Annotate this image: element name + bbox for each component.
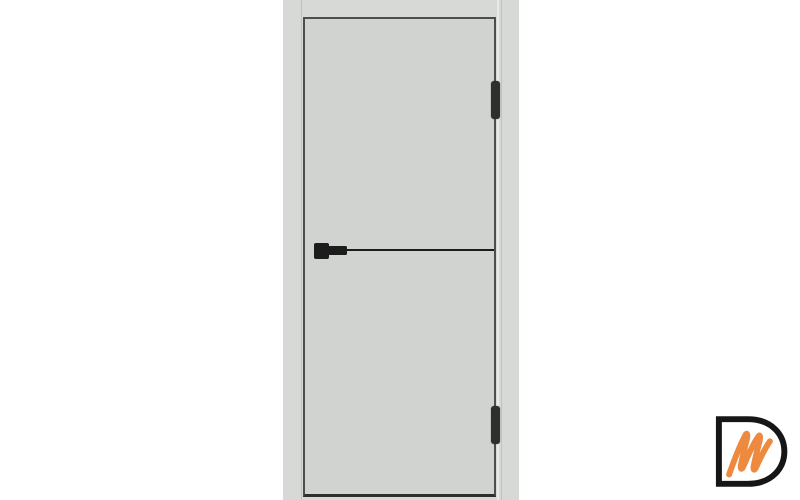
door-leaf: [303, 17, 496, 497]
right-jamb-edge: [501, 0, 502, 500]
hinge-bottom: [491, 406, 500, 444]
edge-molding-line: [345, 249, 494, 251]
product-image: [0, 0, 800, 500]
left-jamb-edge: [301, 0, 302, 500]
door-handle-lever: [326, 246, 347, 255]
logo-letter-m-icon: [729, 434, 770, 475]
door-frame: [283, 0, 519, 500]
brand-logo-watermark: [707, 409, 792, 494]
hinge-top: [491, 81, 500, 119]
